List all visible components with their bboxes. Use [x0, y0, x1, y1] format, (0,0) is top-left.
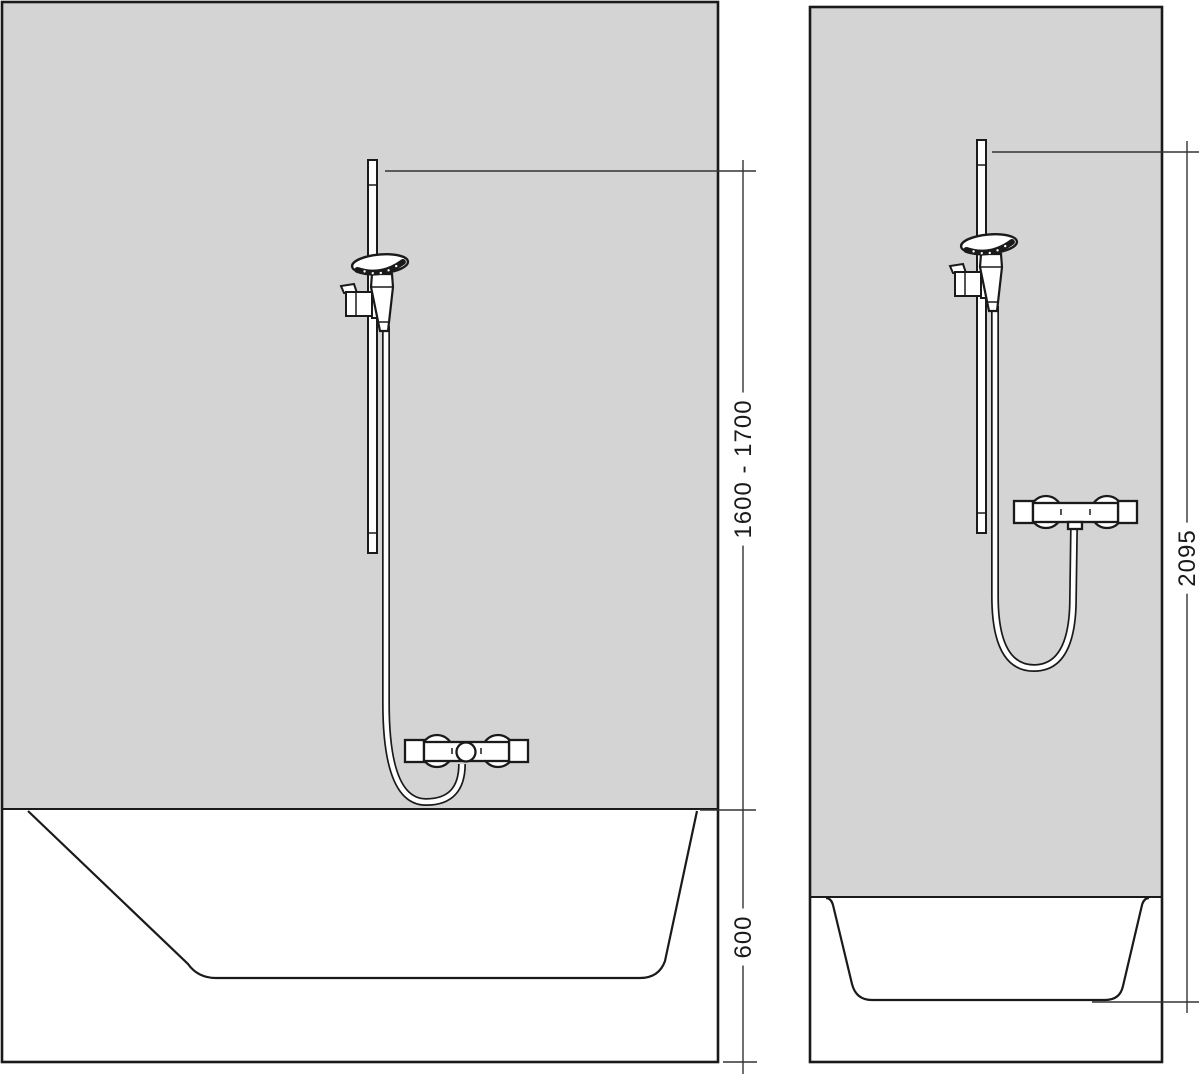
mixer-left-cap: [405, 740, 424, 762]
shower-tray-outline: [826, 898, 1149, 1000]
holder-arm: [346, 292, 372, 316]
front-view-panel: [2, 2, 718, 1062]
holder-arm: [955, 272, 981, 296]
dimension-label-tub-height: 600: [730, 908, 758, 965]
dimension-label-rail-height: 1600 - 1700: [730, 392, 758, 545]
mixer-body: [1033, 503, 1118, 522]
bathtub-outline: [28, 811, 697, 978]
dimension-label-total-height: 2095: [1174, 522, 1200, 593]
side-view-panel: [810, 7, 1162, 1062]
shower-rail: [977, 140, 986, 533]
wall: [2, 2, 718, 809]
drawing-canvas: [0, 0, 1200, 1075]
installation-drawing: 1600 - 1700 600 2095: [0, 0, 1200, 1075]
mixer-right-cap: [1118, 501, 1137, 523]
mixer-right-cap: [509, 740, 528, 762]
mixer-knob: [457, 743, 476, 762]
mixer-hose-stub: [1068, 522, 1082, 529]
shower-rail: [368, 160, 377, 553]
mixer-left-cap: [1014, 501, 1033, 523]
